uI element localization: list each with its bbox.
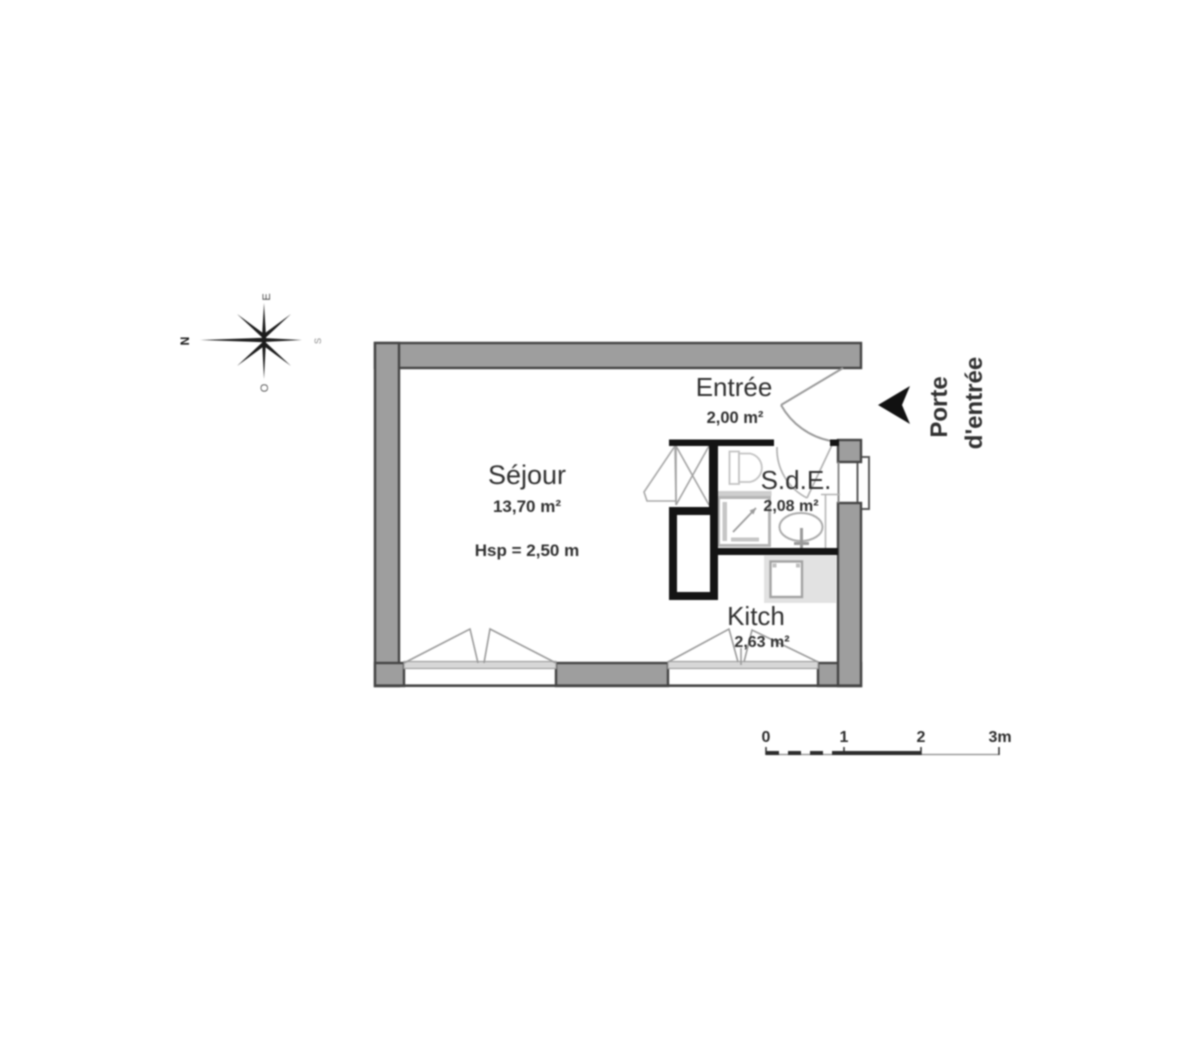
svg-text:N: N (178, 337, 192, 346)
svg-text:2,63 m²: 2,63 m² (734, 634, 789, 651)
svg-text:2,08 m²: 2,08 m² (763, 498, 818, 515)
svg-text:1: 1 (840, 729, 849, 746)
svg-text:O: O (259, 383, 271, 392)
svg-text:Hsp = 2,50 m: Hsp = 2,50 m (475, 541, 579, 560)
svg-text:S: S (313, 338, 323, 344)
svg-text:Kitch: Kitch (727, 601, 785, 631)
svg-text:2: 2 (917, 729, 926, 746)
svg-text:3m: 3m (988, 729, 1011, 746)
svg-text:Séjour: Séjour (488, 460, 566, 490)
svg-text:Porte: Porte (926, 376, 953, 437)
svg-text:Entrée: Entrée (696, 372, 773, 402)
svg-text:0: 0 (762, 729, 771, 746)
svg-text:S.d.E.: S.d.E. (761, 465, 832, 495)
svg-text:d'entrée: d'entrée (961, 357, 988, 449)
svg-text:E: E (261, 293, 273, 300)
svg-text:13,70 m²: 13,70 m² (493, 497, 561, 516)
svg-text:2,00 m²: 2,00 m² (707, 409, 764, 427)
